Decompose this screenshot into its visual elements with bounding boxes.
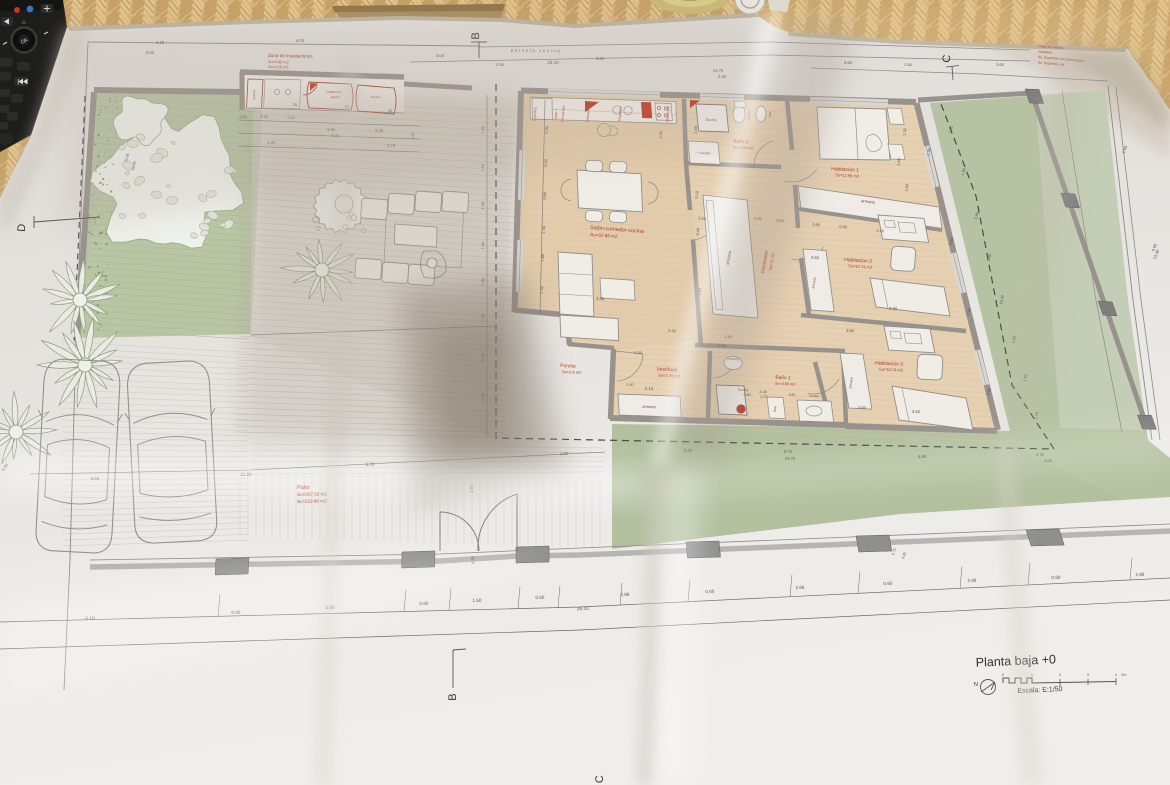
svg-text:2: 2 [1059,673,1061,677]
svg-text:armario: armario [642,404,656,409]
svg-text:2.68: 2.68 [1135,572,1145,577]
svg-text:2.10: 2.10 [645,386,654,391]
svg-text:N: N [974,682,979,688]
svg-text:7.80: 7.80 [541,254,546,262]
svg-text:3.60: 3.60 [846,328,855,333]
svg-text:Bide: Bide [773,405,778,412]
svg-text:Baño 1: Baño 1 [775,375,791,382]
svg-text:2.68: 2.68 [967,578,977,583]
svg-text:0: 0 [1002,673,1004,677]
svg-text:0.30: 0.30 [626,383,633,387]
svg-text:25.10: 25.10 [577,606,590,612]
svg-text:0.50: 0.50 [698,217,706,222]
svg-text:3.80: 3.80 [889,306,898,312]
svg-text:4: 4 [1115,673,1117,677]
svg-text:0.60: 0.60 [858,405,867,410]
svg-text:2.68: 2.68 [620,592,630,597]
svg-text:1.50: 1.50 [540,286,545,294]
svg-text:C: C [594,775,606,783]
svg-text:1.50: 1.50 [542,226,547,234]
svg-text:0.80: 0.80 [743,393,750,397]
svg-text:Sc=219.80 m2: Sc=219.80 m2 [297,498,327,504]
svg-text:1.90: 1.90 [905,184,910,192]
svg-text:B: B [447,693,459,701]
svg-text:0.75: 0.75 [760,395,767,399]
svg-text:1.50: 1.50 [472,598,482,603]
svg-text:0.60: 0.60 [839,225,847,230]
svg-text:0.40: 0.40 [696,228,701,236]
svg-text:1.35: 1.35 [903,128,908,136]
svg-text:0.60: 0.60 [1051,575,1061,580]
svg-text:0.60: 0.60 [535,595,545,600]
svg-text:0.30: 0.30 [668,329,676,333]
svg-text:2.68: 2.68 [795,585,805,590]
svg-text:0.60: 0.60 [705,589,715,594]
svg-text:3: 3 [1087,673,1089,677]
svg-text:Su=4.56 m2: Su=4.56 m2 [775,382,796,387]
svg-text:Su=3.6 m2: Su=3.6 m2 [562,369,582,375]
svg-text:0.90: 0.90 [543,192,548,200]
svg-text:0.60: 0.60 [883,581,893,586]
svg-text:1.40: 1.40 [876,229,884,234]
svg-text:0.10: 0.10 [695,191,700,199]
svg-text:0.60: 0.60 [811,255,820,261]
svg-text:3.00: 3.00 [996,63,1003,67]
svg-text:C: C [941,54,954,63]
svg-text:3.60: 3.60 [912,409,921,414]
svg-text:0.75: 0.75 [784,449,793,454]
svg-text:Lavabo: Lavabo [809,394,820,398]
svg-text:0.30: 0.30 [634,351,642,355]
svg-text:0.80: 0.80 [812,223,820,228]
svg-text:3.60: 3.60 [897,158,902,166]
svg-text:3.90: 3.90 [596,296,605,302]
svg-text:0.65: 0.65 [789,393,796,397]
svg-text:2.40: 2.40 [759,390,767,394]
svg-text:2.60: 2.60 [904,63,911,67]
svg-text:5m: 5m [1121,673,1126,677]
svg-text:D: D [16,223,29,232]
